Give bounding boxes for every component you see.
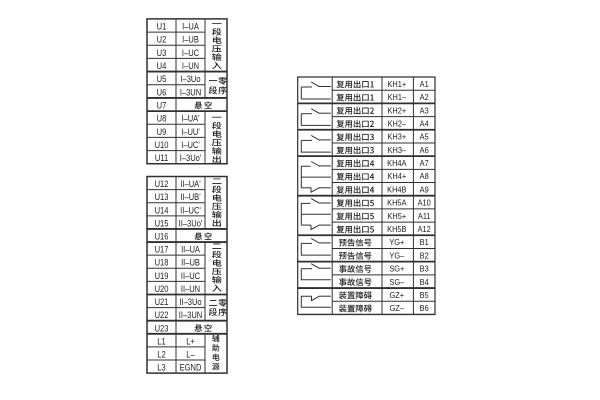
svg-text:SG+: SG+	[389, 264, 404, 274]
svg-text:U15: U15	[155, 218, 169, 229]
svg-text:KH5B: KH5B	[387, 224, 406, 234]
svg-text:II–3Uo': II–3Uo'	[179, 218, 203, 229]
svg-text:U1: U1	[157, 21, 167, 32]
svg-text:II–UA: II–UA	[181, 244, 200, 255]
svg-text:B5: B5	[420, 290, 430, 300]
svg-text:U7: U7	[157, 100, 167, 111]
svg-text:U6: U6	[157, 87, 167, 98]
svg-text:L–: L–	[186, 349, 195, 360]
svg-text:A12: A12	[418, 224, 432, 234]
svg-text:A8: A8	[420, 172, 430, 182]
svg-text:U23: U23	[155, 323, 169, 334]
svg-text:II–UC: II–UC	[181, 270, 200, 281]
svg-text:KH2–: KH2–	[388, 119, 407, 129]
svg-text:A5: A5	[420, 132, 430, 142]
svg-text:KH4B: KH4B	[387, 185, 406, 195]
svg-text:I–UC': I–UC'	[181, 139, 200, 150]
svg-text:KH3+: KH3+	[387, 132, 406, 142]
svg-text:U4: U4	[157, 60, 167, 71]
svg-text:I–UA': I–UA'	[181, 113, 200, 124]
svg-text:II–UN: II–UN	[181, 283, 200, 294]
svg-text:A11: A11	[418, 211, 431, 221]
svg-text:U14: U14	[155, 205, 169, 216]
svg-text:U11: U11	[155, 152, 169, 163]
svg-text:U17: U17	[155, 244, 169, 255]
svg-text:I–3Uo: I–3Uo	[180, 73, 200, 84]
svg-text:SG–: SG–	[389, 277, 404, 287]
svg-text:A4: A4	[420, 119, 430, 129]
svg-text:U10: U10	[155, 139, 169, 150]
svg-text:KH5A: KH5A	[387, 198, 407, 208]
svg-text:II–3UN: II–3UN	[179, 309, 202, 320]
svg-text:L+: L+	[186, 336, 195, 347]
svg-text:U20: U20	[155, 283, 169, 294]
svg-text:EGND: EGND	[180, 362, 202, 373]
svg-text:KH3–: KH3–	[388, 145, 407, 155]
svg-text:U8: U8	[157, 113, 167, 124]
svg-text:KH5+: KH5+	[387, 211, 406, 221]
svg-text:B4: B4	[420, 277, 430, 287]
svg-text:B6: B6	[420, 304, 430, 314]
svg-text:A3: A3	[420, 106, 430, 116]
svg-text:I–3Uo': I–3Uo'	[180, 152, 202, 163]
svg-text:GZ–: GZ–	[390, 304, 405, 314]
svg-text:U16: U16	[155, 231, 169, 242]
svg-text:L3: L3	[157, 362, 166, 373]
svg-text:I–UN: I–UN	[182, 60, 199, 71]
svg-text:A1: A1	[420, 79, 430, 89]
svg-text:II–UB: II–UB	[181, 257, 200, 268]
svg-text:A6: A6	[420, 145, 430, 155]
svg-text:I–3UN: I–3UN	[180, 87, 201, 98]
svg-text:II–UC': II–UC'	[180, 205, 201, 216]
svg-text:YG–: YG–	[389, 251, 404, 261]
svg-text:B3: B3	[420, 264, 430, 274]
svg-text:KH2+: KH2+	[387, 106, 406, 116]
svg-text:U18: U18	[155, 257, 169, 268]
svg-text:I–UU': I–UU'	[181, 126, 200, 137]
svg-text:KH4+: KH4+	[387, 172, 406, 182]
svg-text:U13: U13	[155, 191, 169, 202]
svg-text:KH4A: KH4A	[387, 159, 407, 169]
svg-text:II–UB': II–UB'	[180, 191, 201, 202]
svg-text:B2: B2	[420, 251, 430, 261]
svg-text:A2: A2	[420, 93, 430, 103]
svg-text:L1: L1	[157, 336, 166, 347]
svg-text:U9: U9	[157, 126, 167, 137]
svg-text:GZ+: GZ+	[390, 290, 405, 300]
svg-text:A10: A10	[418, 198, 432, 208]
svg-text:L2: L2	[157, 349, 166, 360]
svg-text:I–UB: I–UB	[182, 34, 199, 45]
svg-text:U19: U19	[155, 270, 169, 281]
svg-text:U5: U5	[157, 73, 167, 84]
svg-text:U3: U3	[157, 47, 167, 58]
svg-text:I–UA: I–UA	[182, 21, 199, 32]
svg-text:YG+: YG+	[389, 238, 404, 248]
svg-text:U21: U21	[155, 296, 169, 307]
svg-text:A9: A9	[420, 185, 430, 195]
svg-text:U12: U12	[155, 178, 169, 189]
svg-text:KH1–: KH1–	[388, 93, 407, 103]
svg-text:B1: B1	[420, 238, 430, 248]
svg-text:U22: U22	[155, 309, 169, 320]
svg-text:II–3Uo: II–3Uo	[179, 296, 202, 307]
svg-text:II–UA': II–UA'	[180, 178, 201, 189]
svg-text:KH1+: KH1+	[387, 79, 406, 89]
svg-text:A7: A7	[420, 159, 430, 169]
svg-text:U2: U2	[157, 34, 167, 45]
svg-text:I–UC: I–UC	[182, 47, 199, 58]
